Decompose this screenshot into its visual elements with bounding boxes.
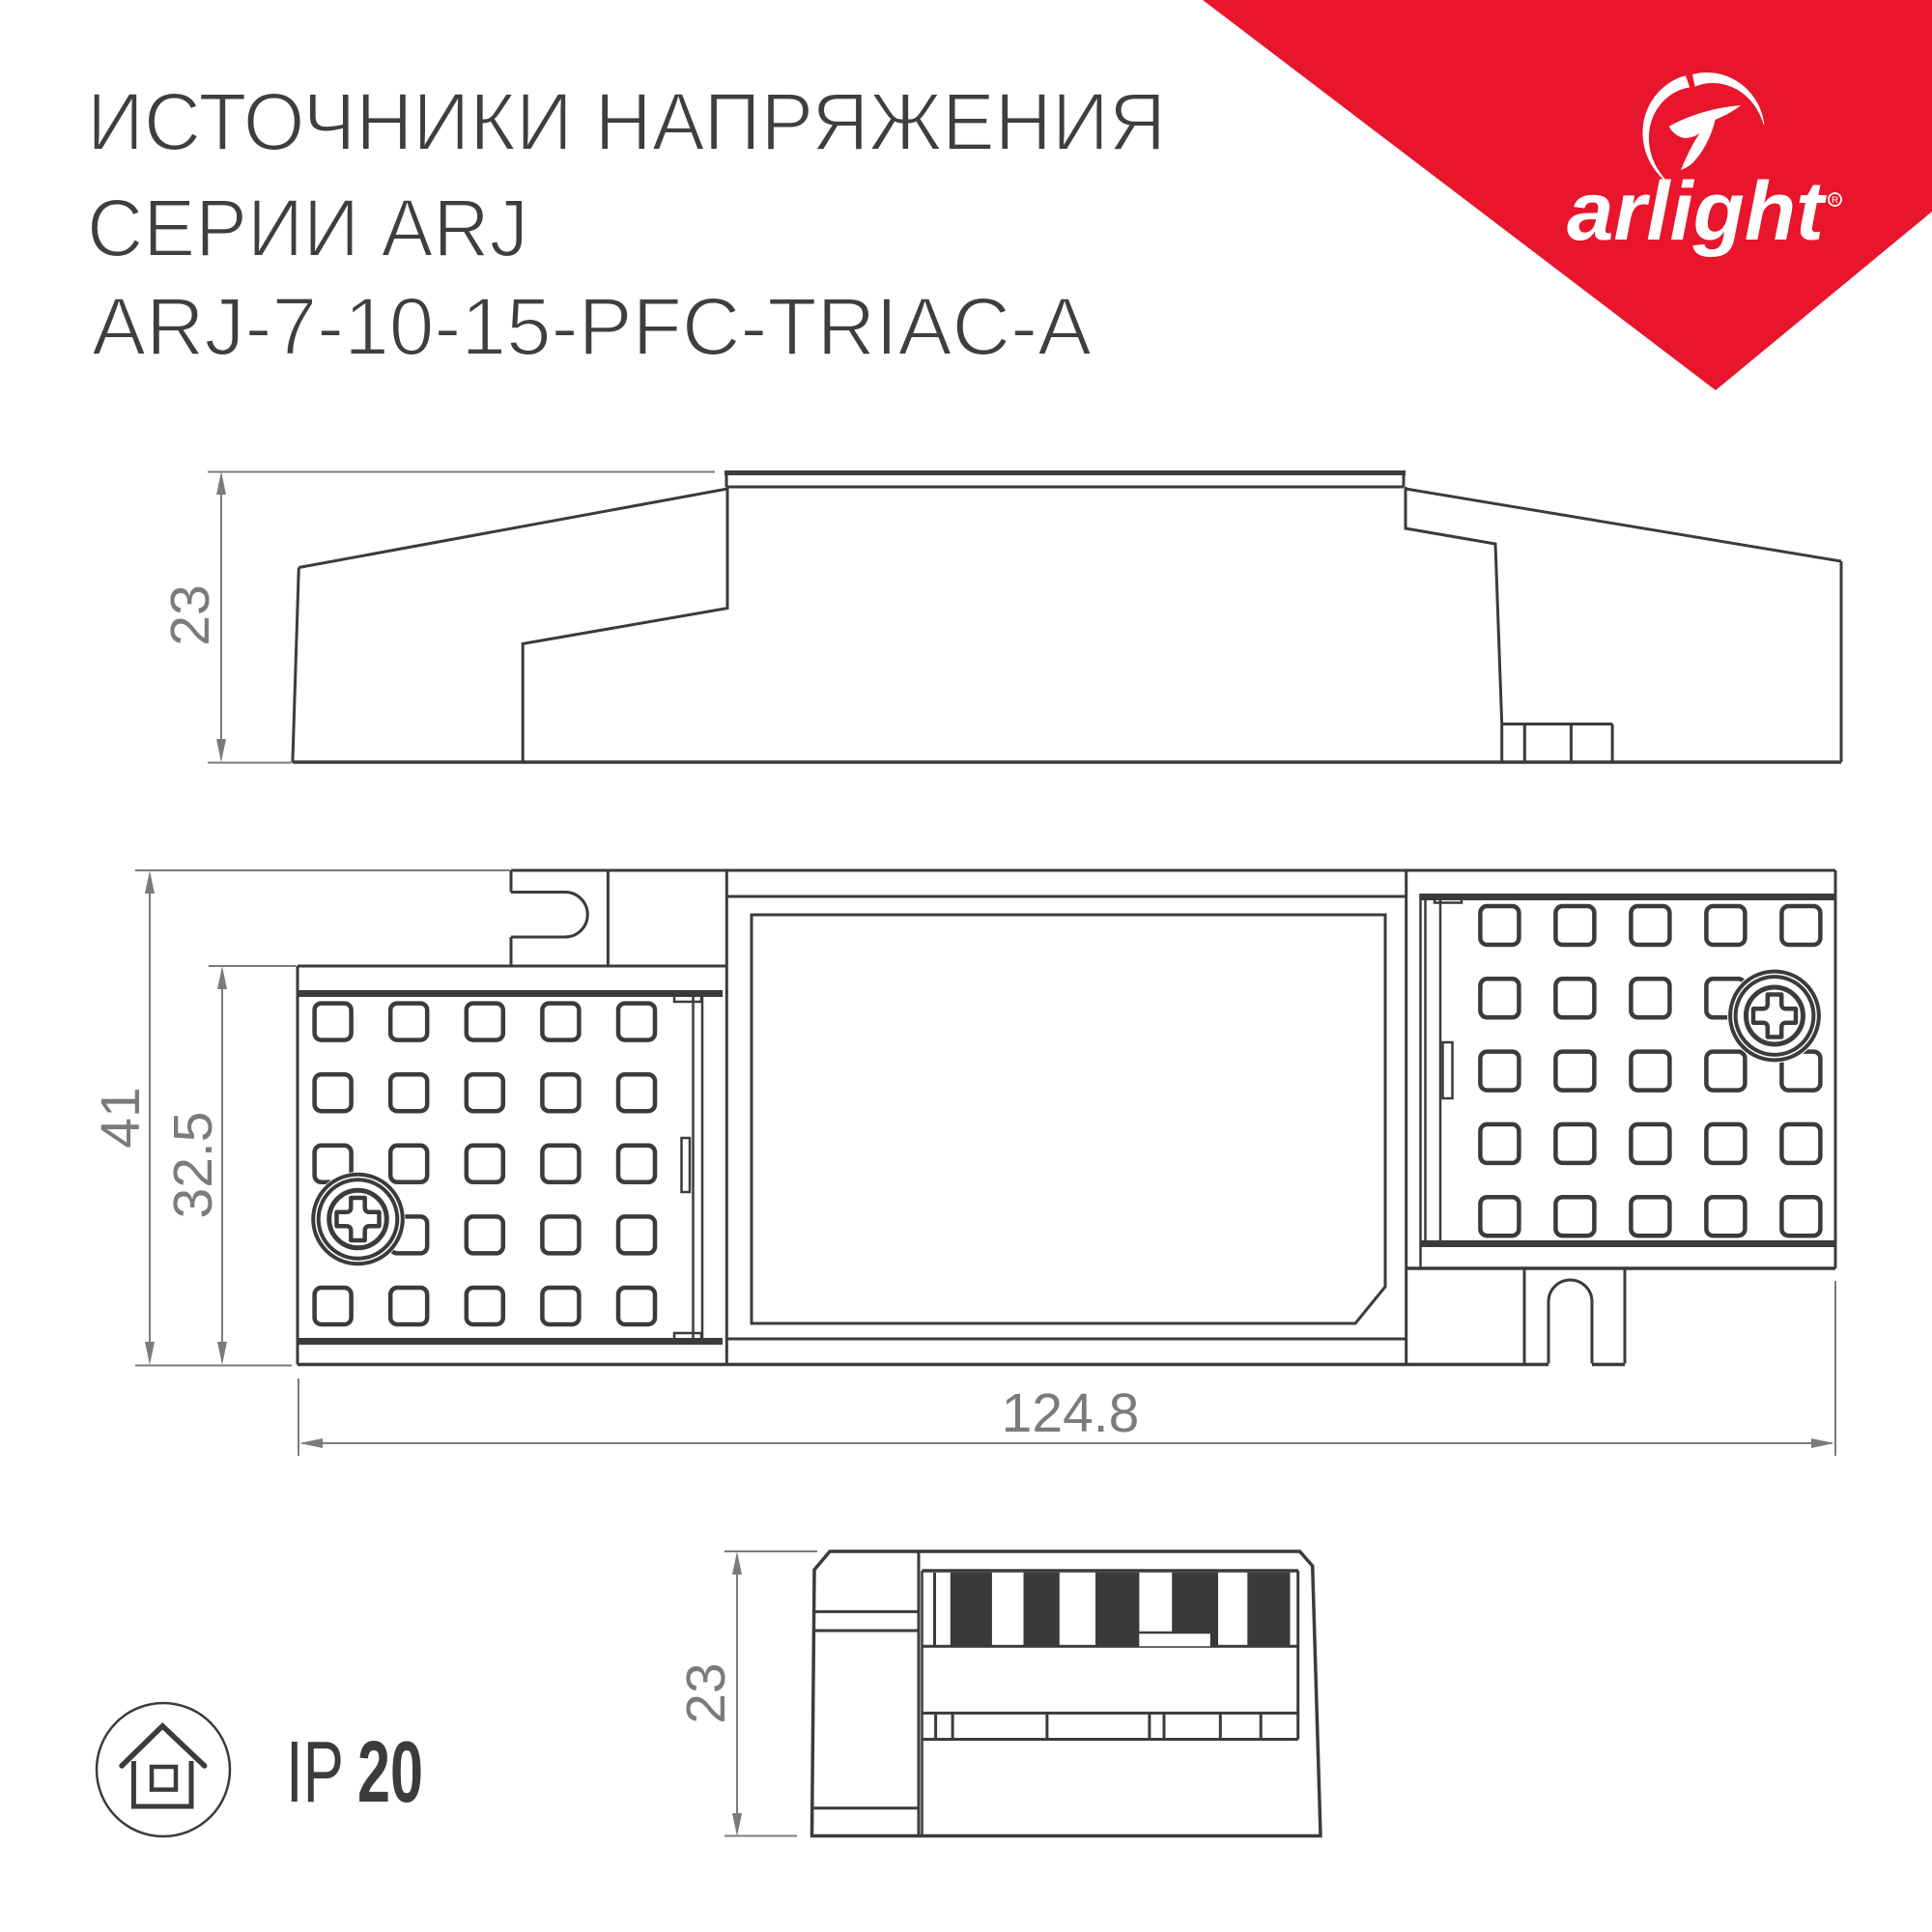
svg-text:20: 20 (357, 1724, 423, 1821)
svg-text:32.5: 32.5 (162, 1112, 224, 1219)
svg-text:41: 41 (90, 1087, 152, 1148)
svg-text:IP: IP (286, 1724, 344, 1821)
svg-text:ARJ-7-10-15-PFC-TRIAC-A: ARJ-7-10-15-PFC-TRIAC-A (92, 281, 1092, 372)
svg-text:R: R (1832, 195, 1838, 206)
svg-text:СЕРИИ ARJ: СЕРИИ ARJ (87, 183, 528, 273)
svg-text:23: 23 (159, 584, 221, 645)
svg-text:arlight: arlight (1567, 165, 1827, 258)
svg-text:23: 23 (675, 1662, 737, 1723)
svg-text:124.8: 124.8 (1002, 1382, 1140, 1444)
svg-text:ИСТОЧНИКИ НАПРЯЖЕНИЯ: ИСТОЧНИКИ НАПРЯЖЕНИЯ (87, 76, 1166, 167)
